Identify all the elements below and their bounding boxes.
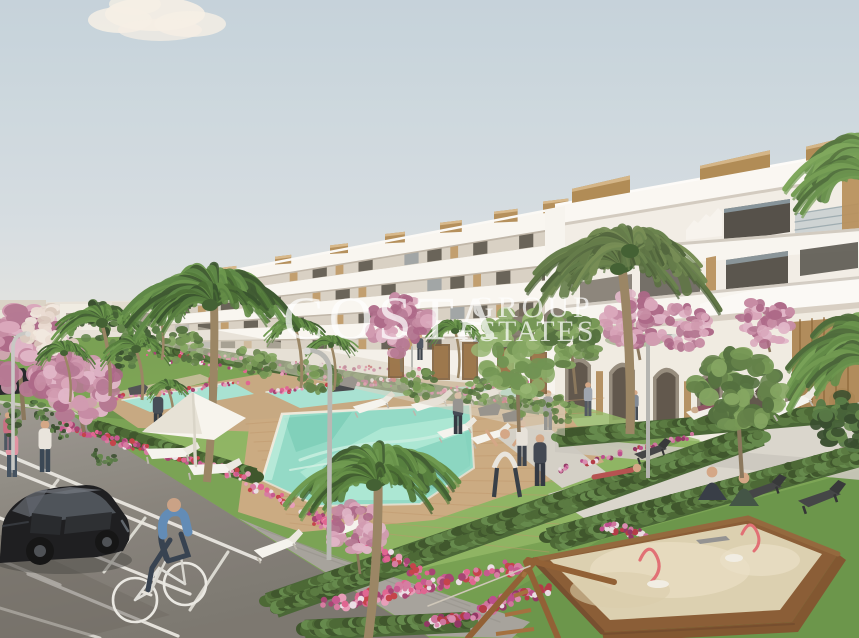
svg-text:ESTATES: ESTATES: [459, 315, 596, 348]
